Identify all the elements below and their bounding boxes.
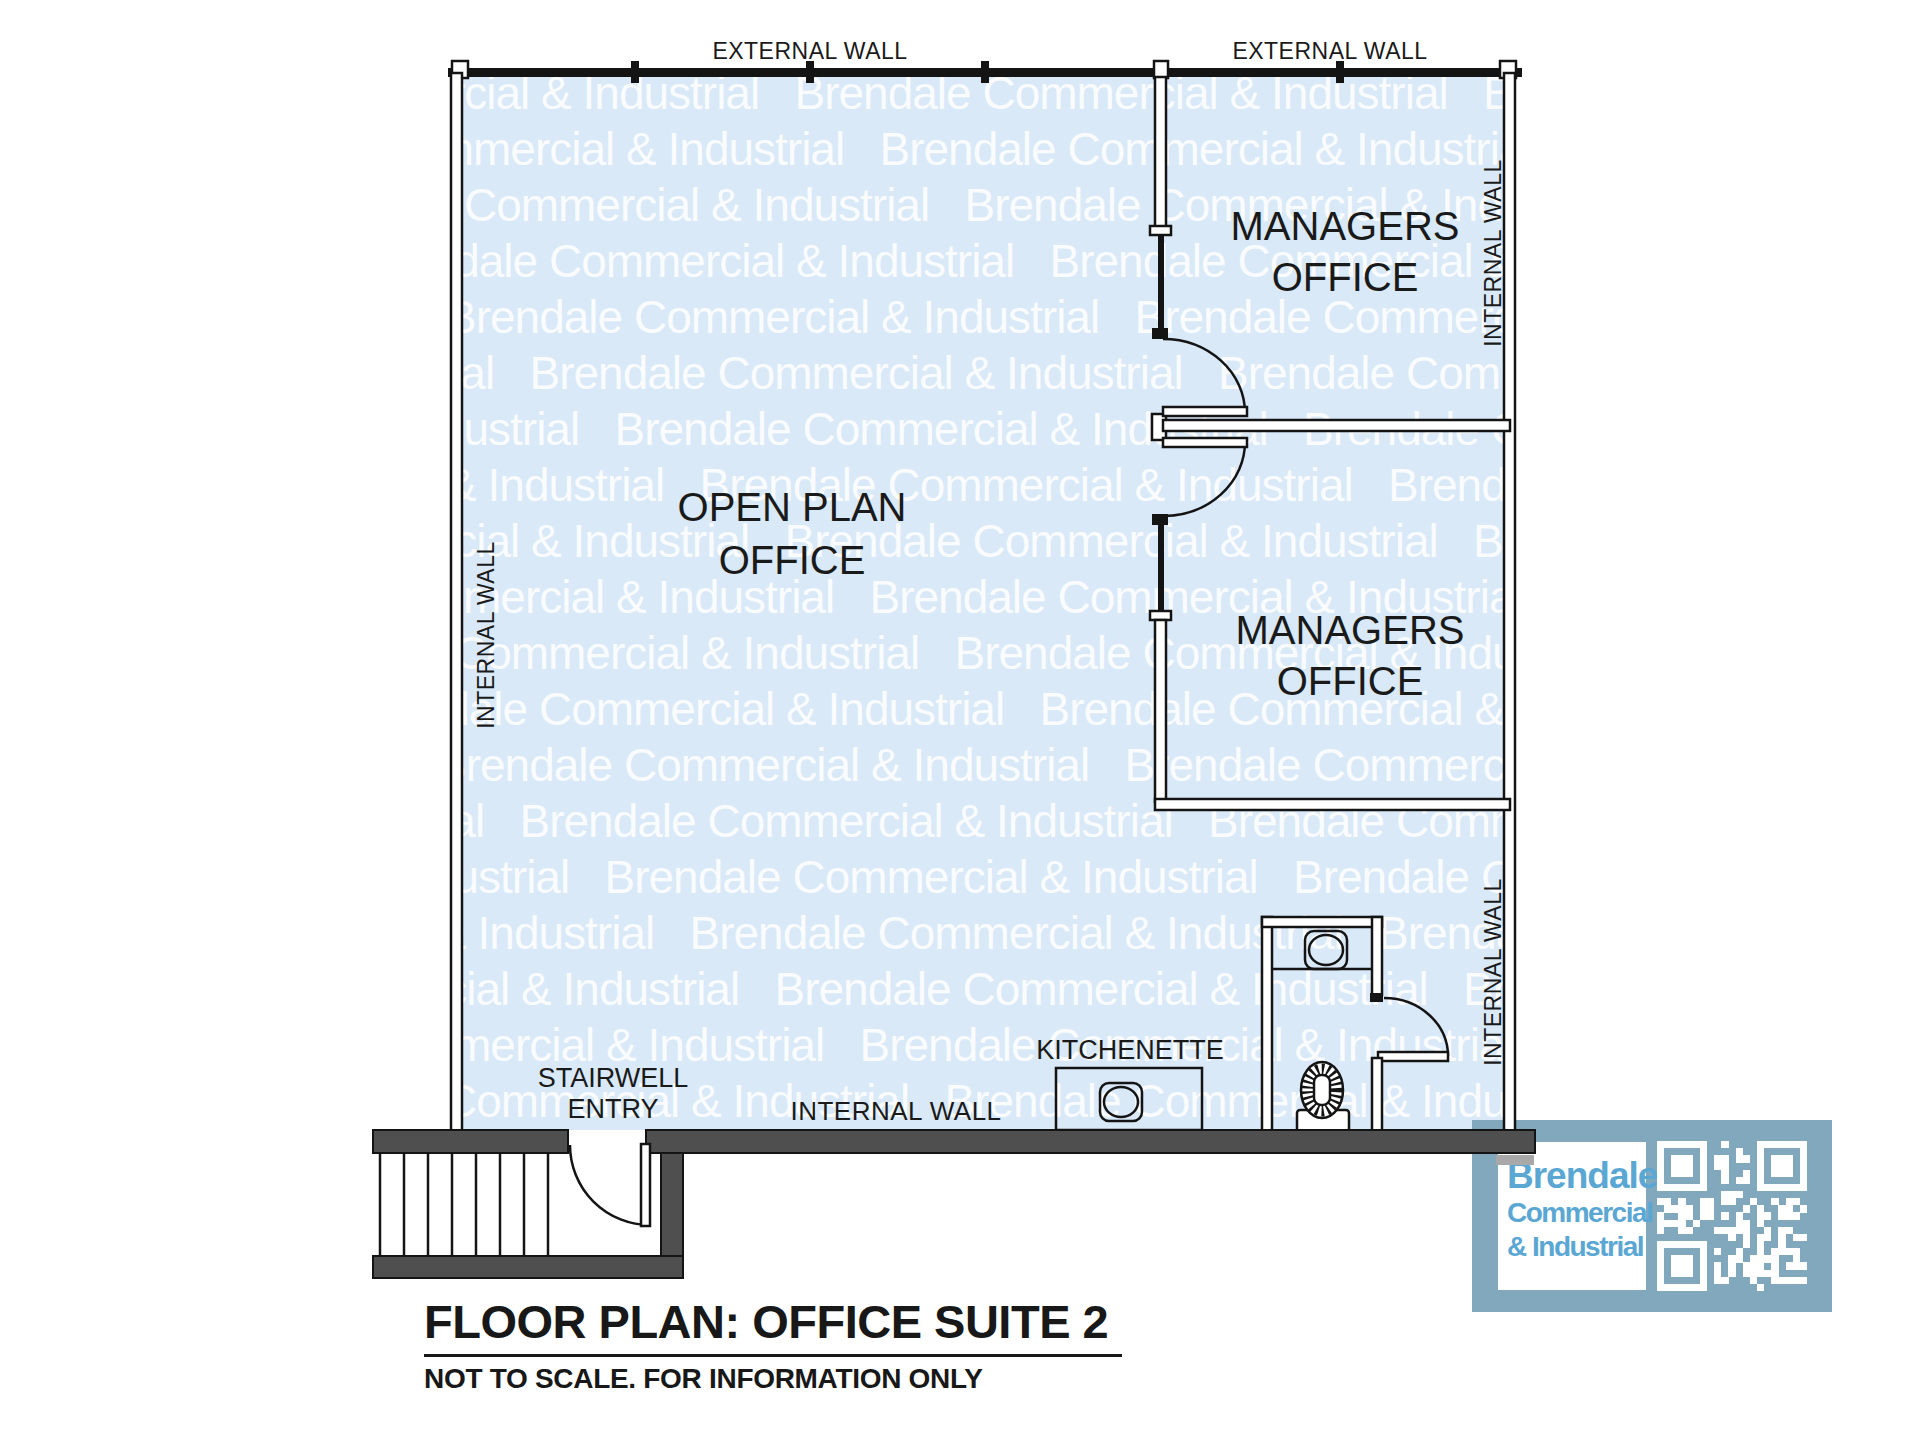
qr-code-icon-part [1678, 1141, 1685, 1148]
qr-code-icon-part [1671, 1262, 1678, 1269]
qr-code-icon-part [1743, 1270, 1750, 1277]
qr-code-icon-part [1686, 1212, 1693, 1219]
qr-code-icon-part [1728, 1262, 1735, 1269]
qr-code-icon-part [1736, 1255, 1743, 1262]
qr-code-icon-part [1757, 1212, 1764, 1219]
qr-code-icon-part [1786, 1184, 1793, 1191]
qr-code-icon-part [1764, 1141, 1771, 1148]
qr-code-icon-part [1800, 1170, 1807, 1177]
qr-code-icon-part [1657, 1141, 1664, 1148]
qr-code-icon-part [1800, 1205, 1807, 1212]
qr-code-icon-part [1657, 1255, 1664, 1262]
qr-code-icon-part [1700, 1162, 1707, 1169]
watermark-row: Brendale Commercial & Industrial Brendal… [451, 737, 1513, 793]
qr-code-icon-part [1771, 1248, 1778, 1255]
qr-code-icon-part [1686, 1141, 1693, 1148]
qr-code-icon-part [1786, 1262, 1793, 1269]
qr-code-icon-part [1793, 1212, 1800, 1219]
qr-code-icon-part [1671, 1141, 1678, 1148]
qr-code-icon-part [1728, 1198, 1735, 1205]
qr-code-icon-part [1686, 1262, 1693, 1269]
qr-code-icon-part [1757, 1255, 1764, 1262]
title-block: FLOOR PLAN: OFFICE SUITE 2 NOT TO SCALE.… [424, 1294, 1122, 1395]
qr-code-icon-part [1764, 1212, 1771, 1219]
qr-code-icon-part [1671, 1155, 1678, 1162]
qr-code-icon-part [1657, 1170, 1664, 1177]
qr-code-icon-part [1757, 1241, 1764, 1248]
qr-code-icon-part [1700, 1284, 1707, 1291]
watermark-row: Brendale Commercial & Industrial Brendal… [451, 457, 1513, 513]
qr-code-icon-part [1700, 1198, 1707, 1205]
qr-code-icon-part [1750, 1270, 1757, 1277]
qr-code-icon-part [1657, 1198, 1664, 1205]
qr-code-icon-part [1800, 1141, 1807, 1148]
qr-code-icon-part [1750, 1255, 1757, 1262]
qr-code-icon-part [1678, 1162, 1685, 1169]
qr-code-icon-part [1678, 1255, 1685, 1262]
qr-code-icon-part [1764, 1255, 1771, 1262]
qr-code-icon-part [1700, 1262, 1707, 1269]
qr-code-icon-part [1793, 1248, 1800, 1255]
watermark-row: Brendale Commercial & Industrial Brendal… [451, 177, 1513, 233]
bottom-wall-dark-part [373, 1130, 568, 1153]
qr-code-icon-part [1678, 1270, 1685, 1277]
qr-code-icon-part [1757, 1155, 1764, 1162]
qr-code-icon-part [1721, 1277, 1728, 1284]
qr-code-icon-part [1743, 1227, 1750, 1234]
qr-code-icon-part [1700, 1184, 1707, 1191]
stair-treads [380, 1153, 548, 1256]
qr-code-icon-part [1678, 1198, 1685, 1205]
qr-code-icon-part [1657, 1284, 1664, 1291]
qr-code-icon-part [1786, 1141, 1793, 1148]
qr-code-icon-part [1700, 1270, 1707, 1277]
qr-code-icon-part [1771, 1277, 1778, 1284]
qr-code-icon-part [1757, 1262, 1764, 1269]
qr-code-icon-part [1686, 1205, 1693, 1212]
floor-plan-page: Brendale Commercial & Industrial Brendal… [0, 0, 1920, 1440]
qr-code-icon-part [1728, 1227, 1735, 1234]
qr-code-icon-part [1714, 1155, 1721, 1162]
qr-code-icon-part [1793, 1255, 1800, 1262]
qr-code-icon-part [1750, 1277, 1757, 1284]
qr-code-icon-part [1793, 1262, 1800, 1269]
qr-code-icon-part [1657, 1270, 1664, 1277]
qr-code-icon-part [1693, 1220, 1700, 1227]
qr-code-icon-part [1771, 1155, 1778, 1162]
qr-code-icon-part [1778, 1205, 1785, 1212]
qr-code-icon-part [1700, 1170, 1707, 1177]
logo-line-industrial: & Industrial [1507, 1230, 1646, 1264]
qr-code-icon-part [1707, 1205, 1714, 1212]
qr-code-icon-part [1800, 1177, 1807, 1184]
qr-code-icon-part [1693, 1141, 1700, 1148]
qr-code-icon-part [1671, 1170, 1678, 1177]
qr-code-icon-part [1757, 1270, 1764, 1277]
qr-code-icon-part [1678, 1284, 1685, 1291]
qr-code-icon-part [1657, 1248, 1664, 1255]
qr-code-icon-part [1786, 1155, 1793, 1162]
qr-code-icon-part [1800, 1277, 1807, 1284]
watermark-row: Brendale Commercial & Industrial Brendal… [451, 345, 1513, 401]
qr-code-icon-part [1671, 1220, 1678, 1227]
qr-code-icon-part [1778, 1170, 1785, 1177]
watermark-row: Brendale Commercial & Industrial Brendal… [451, 289, 1513, 345]
floor-plan-title: FLOOR PLAN: OFFICE SUITE 2 [424, 1294, 1122, 1357]
qr-code-icon-part [1721, 1141, 1728, 1148]
qr-code-icon-part [1664, 1184, 1671, 1191]
watermark-row: Brendale Commercial & Industrial Brendal… [451, 233, 1513, 289]
qr-code-icon-part [1786, 1205, 1793, 1212]
external-wall-label-right: EXTERNAL WALL [1232, 38, 1427, 65]
qr-code-icon-part [1686, 1227, 1693, 1234]
qr-code-icon-part [1771, 1141, 1778, 1148]
watermark-row: Brendale Commercial & Industrial Brendal… [451, 625, 1513, 681]
qr-code-icon-part [1793, 1198, 1800, 1205]
qr-code-icon-part [1786, 1212, 1793, 1219]
qr-code-icon-part [1793, 1277, 1800, 1284]
qr-code-icon-part [1771, 1270, 1778, 1277]
qr-code-icon-part [1657, 1212, 1664, 1219]
qr-code-icon-part [1778, 1184, 1785, 1191]
qr-code-icon-part [1686, 1162, 1693, 1169]
qr-code-icon-part [1714, 1262, 1721, 1269]
watermark-row: Brendale Commercial & Industrial Brendal… [451, 1073, 1513, 1129]
qr-code-icon-part [1771, 1170, 1778, 1177]
qr-code-icon-part [1786, 1162, 1793, 1169]
qr-code-icon-part [1707, 1198, 1714, 1205]
qr-code-icon-part [1736, 1212, 1743, 1219]
qr-code-icon-part [1686, 1241, 1693, 1248]
qr-code-icon-part [1778, 1277, 1785, 1284]
qr-code-icon-part [1800, 1148, 1807, 1155]
qr-code-icon-part [1686, 1284, 1693, 1291]
floor-plan-subtitle: NOT TO SCALE. FOR INFORMATION ONLY [424, 1363, 1122, 1395]
qr-code-icon-part [1700, 1177, 1707, 1184]
qr-code-icon-part [1743, 1155, 1750, 1162]
qr-code-icon-part [1771, 1198, 1778, 1205]
qr-code-icon-part [1700, 1248, 1707, 1255]
watermark-row: Brendale Commercial & Industrial Brendal… [451, 905, 1513, 961]
qr-code-icon-part [1664, 1198, 1671, 1205]
qr-code-icon-part [1786, 1277, 1793, 1284]
qr-code-icon-part [1721, 1155, 1728, 1162]
qr-code-icon-part [1686, 1270, 1693, 1277]
watermark-row: Brendale Commercial & Industrial Brendal… [451, 401, 1513, 457]
watermark-row: Brendale Commercial & Industrial Brendal… [451, 849, 1513, 905]
qr-code-icon-part [1764, 1234, 1771, 1241]
qr-code-icon-part [1671, 1255, 1678, 1262]
qr-code-icon-part [1757, 1205, 1764, 1212]
qr-code-icon-part [1721, 1227, 1728, 1234]
qr-code-icon-part [1686, 1155, 1693, 1162]
qr-code-icon-part [1700, 1148, 1707, 1155]
brendale-logo-text-box: Brendale Commercial & Industrial [1498, 1142, 1646, 1290]
qr-code-icon-part [1778, 1212, 1785, 1219]
office-floor-area: Brendale Commercial & Industrial Brendal… [451, 73, 1513, 1130]
qr-code-icon-part [1800, 1155, 1807, 1162]
qr-code-icon-part [1700, 1205, 1707, 1212]
door-leaf [641, 1144, 650, 1226]
qr-code-icon-part [1664, 1284, 1671, 1291]
qr-code-icon-part [1757, 1148, 1764, 1155]
qr-code-icon-part [1743, 1241, 1750, 1248]
qr-code-icon-part [1671, 1270, 1678, 1277]
qr-code-icon-part [1728, 1255, 1735, 1262]
stairwell [373, 1144, 683, 1278]
logo-line-commercial: Commercial [1507, 1196, 1646, 1230]
qr-code-icon-part [1771, 1255, 1778, 1262]
qr-code-icon-part [1714, 1248, 1721, 1255]
qr-code-icon-part [1736, 1177, 1743, 1184]
qr-code-icon-part [1693, 1184, 1700, 1191]
qr-code-icon-part [1714, 1277, 1721, 1284]
qr-code-icon-part [1786, 1227, 1793, 1234]
qr-code-icon-part [1678, 1170, 1685, 1177]
qr-code-icon-part [1721, 1170, 1728, 1177]
watermark-row: Brendale Commercial & Industrial Brendal… [451, 961, 1513, 1017]
qr-code-icon-part [1671, 1241, 1678, 1248]
watermark-row: Brendale Commercial & Industrial Brendal… [451, 121, 1513, 177]
watermark-row: Brendale Commercial & Industrial Brendal… [451, 1017, 1513, 1073]
bottom-wall-dark [373, 1130, 1535, 1165]
qr-code-icon-part [1728, 1234, 1735, 1241]
qr-code-icon-part [1714, 1227, 1721, 1234]
qr-code-icon-part [1728, 1191, 1735, 1198]
qr-code-icon-part [1693, 1241, 1700, 1248]
qr-code-icon-part [1671, 1184, 1678, 1191]
qr-code-icon-part [1757, 1170, 1764, 1177]
qr-code-icon-part [1721, 1177, 1728, 1184]
logo-line-brendale: Brendale [1507, 1156, 1646, 1196]
qr-code-icon-part [1678, 1220, 1685, 1227]
qr-code-icon-part [1750, 1262, 1757, 1269]
qr-code-icon-part [1778, 1162, 1785, 1169]
qr-code-icon-part [1764, 1184, 1771, 1191]
qr-code-icon-part [1786, 1170, 1793, 1177]
qr-code-icon-part [1736, 1220, 1743, 1227]
door-stairwell [570, 1144, 650, 1226]
qr-code-icon-part [1678, 1227, 1685, 1234]
door-swing-arc [570, 1145, 650, 1225]
external-wall-label-left: EXTERNAL WALL [712, 38, 907, 65]
qr-code-icon-part [1743, 1177, 1750, 1184]
qr-code-icon-part [1714, 1162, 1721, 1169]
qr-code-icon-part [1678, 1184, 1685, 1191]
qr-code-icon-part [1671, 1162, 1678, 1169]
watermark-row: Brendale Commercial & Industrial Brendal… [451, 681, 1513, 737]
qr-code-icon-part [1678, 1205, 1685, 1212]
qr-code-icon-part [1736, 1248, 1743, 1255]
qr-code-icon-part [1743, 1205, 1750, 1212]
qr-code-icon-part [1686, 1255, 1693, 1262]
qr-code-icon-part [1678, 1212, 1685, 1219]
qr-code-icon-part [1700, 1255, 1707, 1262]
qr-code-icon-part [1757, 1177, 1764, 1184]
qr-code-icon-part [1793, 1184, 1800, 1191]
qr-code-icon-part [1757, 1284, 1764, 1291]
qr-code-icon-part [1657, 1184, 1664, 1191]
qr-code-icon-part [1678, 1155, 1685, 1162]
qr-code-icon-part [1714, 1270, 1721, 1277]
qr-code-icon-part [1657, 1227, 1664, 1234]
qr-code-icon-part [1778, 1227, 1785, 1234]
qr-code-icon-part [1743, 1262, 1750, 1269]
qr-code-icon-part [1800, 1162, 1807, 1169]
qr-code-icon-part [1700, 1212, 1707, 1219]
qr-code-icon-part [1671, 1205, 1678, 1212]
qr-code-icon-part [1700, 1155, 1707, 1162]
qr-code-icon-part [1664, 1220, 1671, 1227]
qr-code-icon-part [1736, 1148, 1743, 1155]
qr-code-icon-part [1657, 1148, 1664, 1155]
watermark-row: Brendale Commercial & Industrial Brendal… [451, 73, 1513, 121]
qr-code-icon-part [1757, 1248, 1764, 1255]
qr-code-icon-part [1657, 1262, 1664, 1269]
qr-code-icon-part [1771, 1262, 1778, 1269]
qr-code-icon-part [1678, 1241, 1685, 1248]
qr-code-icon-part [1721, 1212, 1728, 1219]
qr-code-icon-part [1786, 1198, 1793, 1205]
qr-code-icon-part [1664, 1205, 1671, 1212]
qr-code-icon-part [1757, 1220, 1764, 1227]
qr-code-icon-part [1771, 1184, 1778, 1191]
stair-right-wall [661, 1153, 683, 1256]
qr-code-icon-part [1743, 1234, 1750, 1241]
qr-code-icon-part [1721, 1198, 1728, 1205]
qr-code-icon-part [1657, 1241, 1664, 1248]
qr-code-icon-part [1686, 1184, 1693, 1191]
qr-code-icon-part [1736, 1227, 1743, 1234]
qr-code-icon-part [1757, 1141, 1764, 1148]
qr-code-icon-part [1728, 1270, 1735, 1277]
qr-code-icon-part [1721, 1191, 1728, 1198]
qr-code-icon-part [1736, 1191, 1743, 1198]
qr-code-icon-part [1736, 1155, 1743, 1162]
brendale-logo: Brendale Commercial & Industrial [1472, 1120, 1832, 1312]
qr-code-icon-part [1764, 1227, 1771, 1234]
qr-code-icon-part [1764, 1270, 1771, 1277]
qr-code-icon-part [1657, 1220, 1664, 1227]
qr-code-icon-part [1707, 1212, 1714, 1219]
qr-code-icon-part [1757, 1234, 1764, 1241]
stair-bottom-wall [373, 1256, 683, 1278]
qr-code-icon-part [1671, 1284, 1678, 1291]
qr-code-icon-part [1800, 1184, 1807, 1191]
qr-code-icon-part [1771, 1162, 1778, 1169]
qr-code-icon-part [1686, 1170, 1693, 1177]
qr-code-icon [1657, 1141, 1807, 1291]
qr-code-icon-part [1657, 1155, 1664, 1162]
qr-code-icon-part [1800, 1262, 1807, 1269]
qr-code-icon-part [1700, 1241, 1707, 1248]
qr-code-icon-part [1757, 1162, 1764, 1169]
qr-code-icon-part [1743, 1170, 1750, 1177]
qr-code-icon-part [1778, 1241, 1785, 1248]
bottom-wall-dark-part [646, 1130, 1535, 1153]
qr-code-icon-part [1778, 1248, 1785, 1255]
qr-code-icon-part [1750, 1198, 1757, 1205]
qr-code-icon-part [1700, 1141, 1707, 1148]
qr-code-icon-part [1657, 1177, 1664, 1184]
qr-code-icon-part [1793, 1141, 1800, 1148]
watermark-row: Brendale Commercial & Industrial Brendal… [451, 793, 1513, 849]
qr-code-icon-part [1678, 1262, 1685, 1269]
qr-code-icon-part [1778, 1234, 1785, 1241]
qr-code-icon-part [1778, 1141, 1785, 1148]
qr-code-icon-part [1664, 1241, 1671, 1248]
qr-code-icon-part [1657, 1277, 1664, 1284]
qr-code-icon-part [1757, 1184, 1764, 1191]
qr-code-icon-part [1721, 1162, 1728, 1169]
qr-code-icon-part [1700, 1277, 1707, 1284]
qr-code-icon-part [1743, 1220, 1750, 1227]
qr-code-icon-part [1778, 1155, 1785, 1162]
qr-code-icon-part [1793, 1234, 1800, 1241]
watermark-row: Brendale Commercial & Industrial Brendal… [451, 513, 1513, 569]
qr-code-icon-part [1657, 1162, 1664, 1169]
qr-code-icon-part [1786, 1248, 1793, 1255]
qr-code-icon-part [1664, 1141, 1671, 1148]
qr-code-icon-part [1800, 1234, 1807, 1241]
qr-code-icon-part [1693, 1284, 1700, 1291]
watermark-row: Brendale Commercial & Industrial Brendal… [451, 569, 1513, 625]
